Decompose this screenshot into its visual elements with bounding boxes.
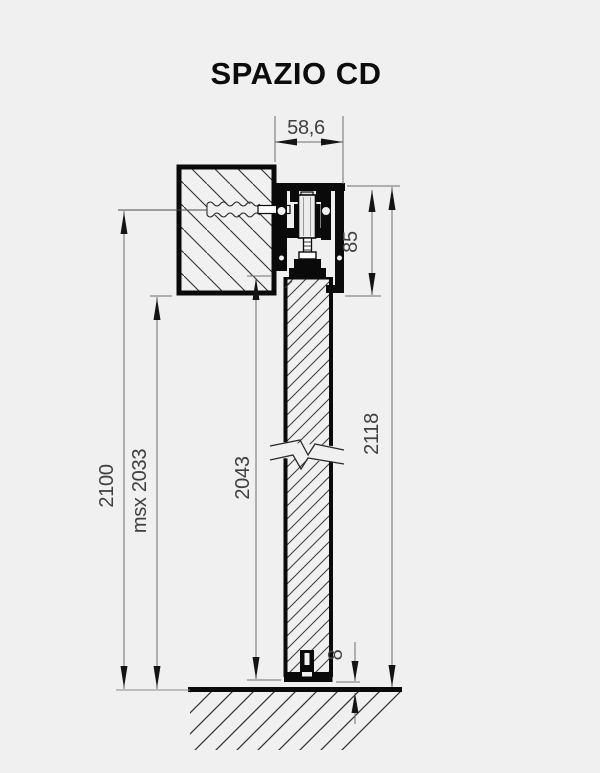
drawing-canvas: SPAZIO CD (0, 0, 600, 773)
dim-opening-height: 2100 (96, 211, 128, 689)
dim-door-height: 2043 (232, 276, 281, 680)
floor-hatch (190, 692, 402, 750)
dim-overall-height: 2118 (347, 186, 400, 687)
drawing-title: SPAZIO CD (211, 56, 382, 91)
dim-label-msx-height: msx 2033 (129, 449, 151, 533)
dim-label-opening-height: 2100 (96, 464, 118, 507)
door-bracket (289, 259, 326, 277)
dim-label-track-height: 85 (340, 231, 362, 253)
wall-section (179, 167, 274, 293)
door-panel (284, 277, 334, 677)
dim-track-height: 85 (340, 190, 381, 296)
dim-label-floor-gap: 8 (325, 649, 347, 660)
technical-drawing: SPAZIO CD (0, 0, 600, 773)
dim-label-door-height: 2043 (232, 456, 254, 499)
floor-line (188, 687, 402, 692)
dim-label-track-width: 58,6 (287, 117, 325, 139)
dim-label-overall-height: 2118 (361, 413, 383, 455)
dim-msx-height: msx 2033 (129, 296, 172, 689)
dim-track-width: 58,6 (275, 116, 343, 184)
hanger-bolt (299, 238, 316, 259)
